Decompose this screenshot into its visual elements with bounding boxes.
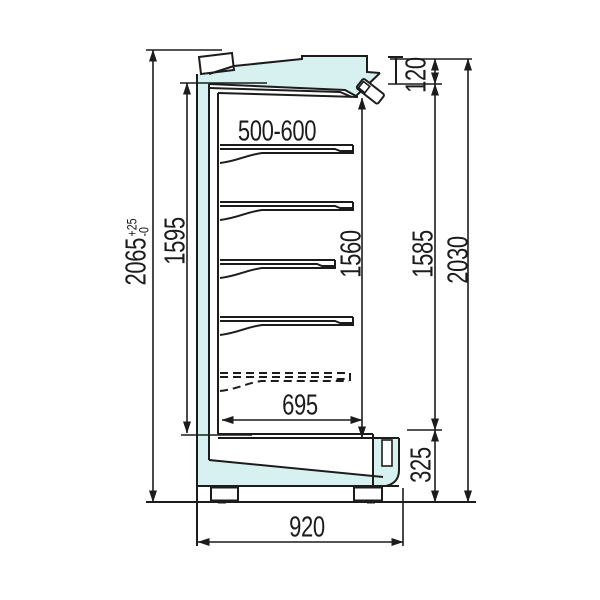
shelf-3 <box>220 260 335 278</box>
dim-label-overall-depth: 920 <box>289 514 325 543</box>
dim-label-interior-height: 1560 <box>338 230 367 278</box>
shelf-2 <box>220 202 353 220</box>
dim-value: 2065 <box>121 238 153 286</box>
dim-label-inner-depth: 695 <box>282 392 318 421</box>
technical-drawing-canvas: 2065+25-0 1595 1560 1585 2030 120 325 50… <box>0 0 600 600</box>
dim-label-inner-back-height: 1595 <box>162 217 191 265</box>
foot-rear <box>211 488 238 501</box>
shelf-4 <box>220 317 353 335</box>
dim-label-body-height: 2030 <box>445 236 474 284</box>
interior-ceiling-line <box>218 93 358 97</box>
dim-label-shelf-pitch-range: 500-600 <box>238 118 316 147</box>
base-panel <box>197 460 388 486</box>
dim-label-overall-height: 2065+25-0 <box>123 218 152 285</box>
shelves <box>220 145 353 391</box>
cabinet-section-drawing <box>0 0 600 600</box>
dim-label-front-height: 1585 <box>410 230 439 278</box>
shelf-1 <box>220 145 353 163</box>
foot-front <box>354 488 382 501</box>
shelf-optional-dashed <box>220 373 350 391</box>
dim-label-base-height: 325 <box>408 447 437 483</box>
tolerance: +25-0 <box>126 218 150 236</box>
bumper-notch <box>382 440 392 466</box>
dim-label-canopy-height: 120 <box>403 57 432 93</box>
back-wall-panel <box>197 74 209 487</box>
